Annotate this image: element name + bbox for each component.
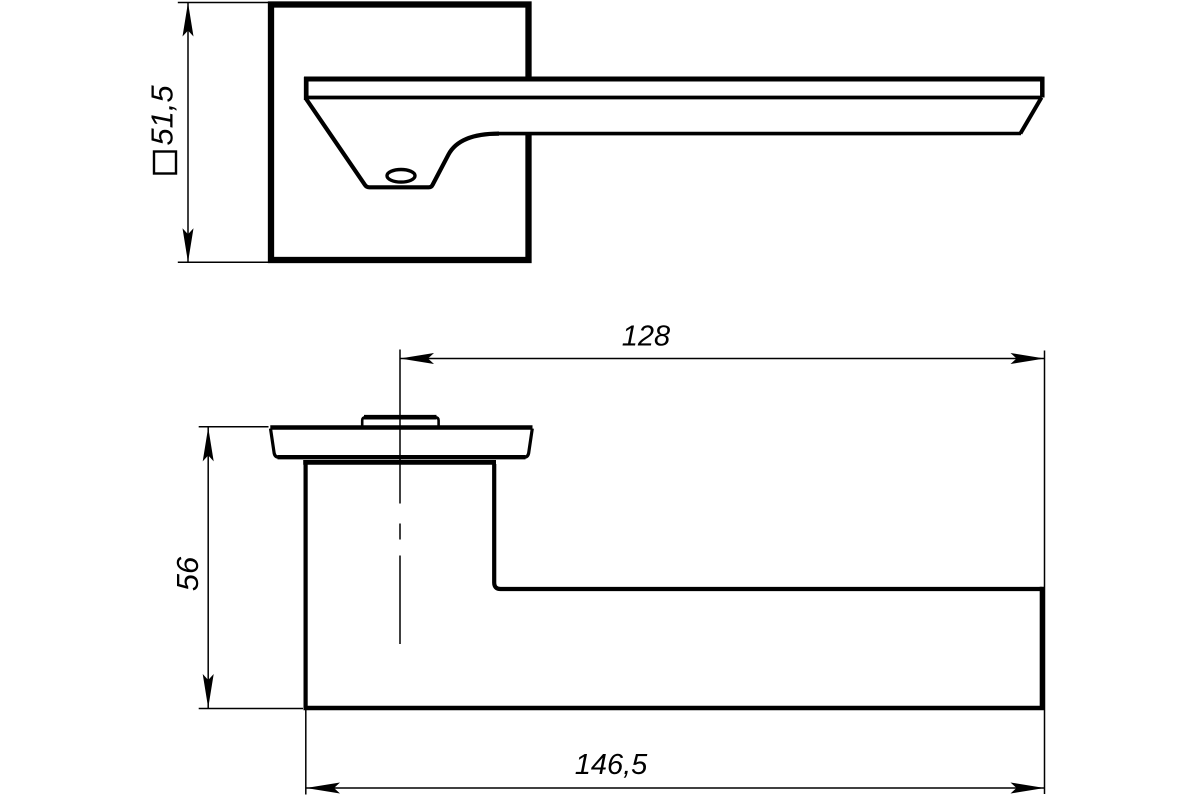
svg-text:51,5: 51,5 [145, 85, 180, 146]
svg-text:56: 56 [170, 556, 205, 591]
svg-text:146,5: 146,5 [575, 749, 648, 781]
svg-text:128: 128 [622, 321, 670, 353]
